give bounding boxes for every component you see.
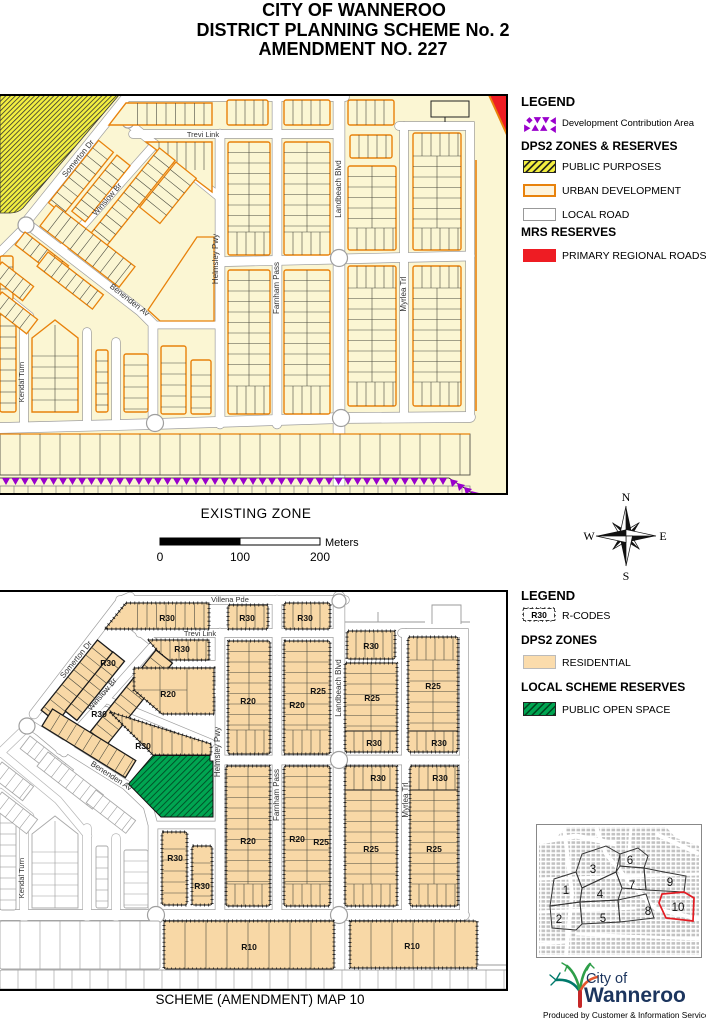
svg-text:100: 100 [230,550,250,564]
svg-text:200: 200 [310,550,330,564]
svg-text:R25: R25 [313,837,329,847]
svg-text:R30: R30 [239,613,255,623]
svg-text:9: 9 [667,877,673,889]
svg-text:R10: R10 [404,941,420,951]
svg-text:3: 3 [590,864,596,876]
svg-text:R25: R25 [310,686,326,696]
svg-text:Farnham Pass: Farnham Pass [272,262,281,314]
svg-text:6: 6 [627,855,633,867]
svg-text:Trevi Link: Trevi Link [187,130,219,139]
svg-text:N: N [622,490,631,504]
svg-text:R30: R30 [100,658,116,668]
svg-text:10: 10 [672,902,685,914]
svg-text:R20: R20 [160,689,176,699]
svg-text:Meters: Meters [325,537,359,549]
svg-text:R30: R30 [431,738,447,748]
svg-text:R20: R20 [289,700,305,710]
svg-text:R25: R25 [426,844,442,854]
svg-text:W: W [583,529,595,543]
svg-text:7: 7 [629,880,635,892]
svg-text:Landbeach Blvd: Landbeach Blvd [334,659,343,716]
svg-text:Myrlea Trl: Myrlea Trl [401,782,410,817]
svg-text:R20: R20 [240,836,256,846]
svg-text:5: 5 [600,913,606,925]
svg-text:R25: R25 [364,693,380,703]
svg-text:Kendal Turn: Kendal Turn [17,858,26,898]
svg-text:R25: R25 [425,681,441,691]
svg-text:1: 1 [563,885,569,897]
svg-text:8: 8 [645,906,651,918]
svg-text:0: 0 [157,550,164,564]
svg-text:R30: R30 [370,773,386,783]
svg-text:R30: R30 [194,881,210,891]
svg-text:Trevi Link: Trevi Link [184,629,216,638]
svg-text:Farnham Pass: Farnham Pass [272,769,281,821]
svg-text:Wanneroo: Wanneroo [584,984,686,1007]
svg-text:R20: R20 [289,834,305,844]
svg-text:R30: R30 [167,853,183,863]
svg-text:2: 2 [556,914,562,926]
svg-text:Villena Pde: Villena Pde [211,595,249,604]
svg-text:R30: R30 [366,738,382,748]
svg-text:R30: R30 [531,610,547,620]
svg-text:R30: R30 [363,641,379,651]
svg-text:Landbeach Blvd: Landbeach Blvd [334,160,343,217]
svg-text:R25: R25 [363,844,379,854]
svg-text:R20: R20 [240,696,256,706]
svg-text:R30: R30 [174,644,190,654]
svg-text:Kendal Turn: Kendal Turn [17,362,26,402]
svg-text:Helmsley Pwy: Helmsley Pwy [211,234,220,284]
svg-text:E: E [659,529,666,543]
svg-text:Helmsley Pwy: Helmsley Pwy [213,727,222,777]
svg-text:S: S [623,569,630,583]
svg-text:R30: R30 [432,773,448,783]
svg-text:Myrlea Trl: Myrlea Trl [399,276,408,311]
svg-text:R30: R30 [135,741,151,751]
svg-text:R30: R30 [297,613,313,623]
svg-text:4: 4 [597,889,604,901]
svg-text:R10: R10 [241,942,257,952]
svg-text:R30: R30 [159,613,175,623]
